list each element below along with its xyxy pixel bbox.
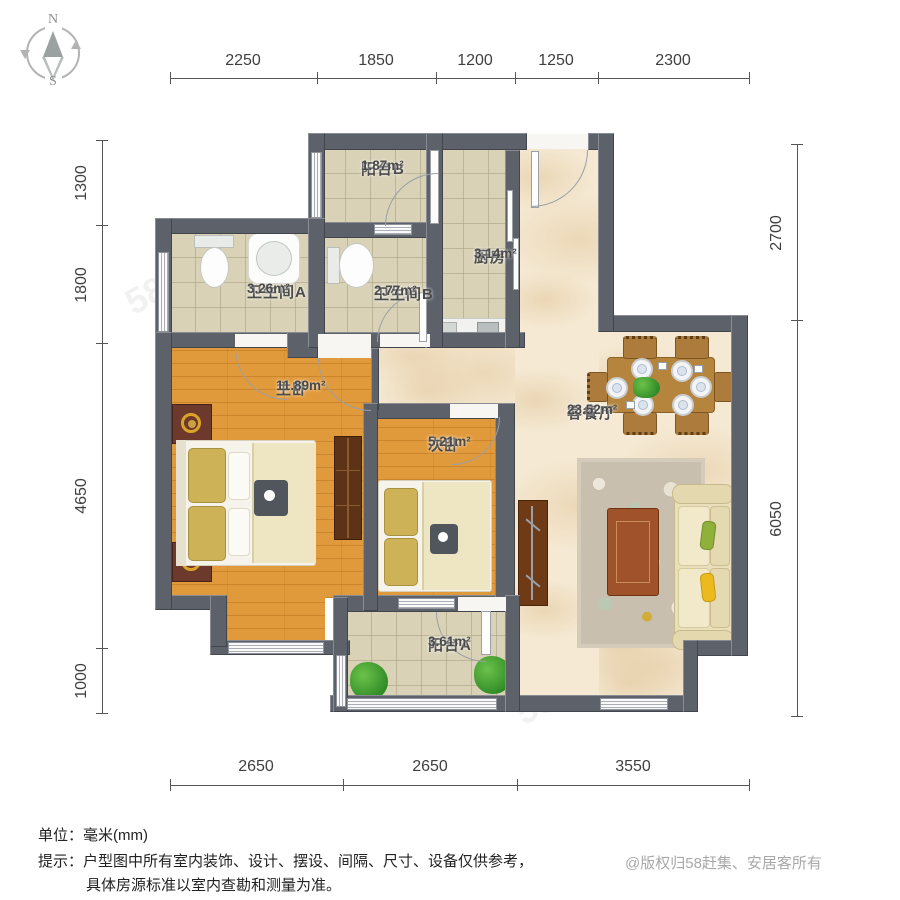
dim-bottom-1: 2650 xyxy=(221,758,291,776)
compass-needle-north-icon xyxy=(43,31,63,57)
dimension-tick xyxy=(170,779,171,791)
dimension-tick xyxy=(96,713,108,714)
dimension-tick xyxy=(96,343,108,344)
dining-chair xyxy=(675,336,709,359)
wall xyxy=(731,315,748,656)
headboard xyxy=(176,440,186,566)
dining-chair xyxy=(623,336,657,359)
sofa-armrest xyxy=(672,484,734,504)
door-opening xyxy=(450,404,498,418)
dimension-tick xyxy=(96,140,108,141)
wardrobe-divider xyxy=(336,470,360,471)
napkin xyxy=(626,401,635,409)
dimension-tick xyxy=(170,72,171,84)
dim-left-4: 1000 xyxy=(73,646,91,716)
window xyxy=(398,598,455,609)
room-area: 2.77m² xyxy=(374,283,417,298)
room-area: 3.61m² xyxy=(428,634,471,649)
plate-center xyxy=(637,364,647,374)
pillow xyxy=(384,538,418,586)
pillow xyxy=(384,488,418,536)
dim-right-2: 6050 xyxy=(768,484,786,554)
wall xyxy=(155,218,320,234)
window xyxy=(600,698,668,710)
pillow xyxy=(228,508,250,556)
floor-master-bay xyxy=(227,596,325,642)
wardrobe-divider xyxy=(336,505,360,506)
compass-north-label: N xyxy=(48,12,58,28)
dining-chair xyxy=(587,372,608,402)
dim-left-2: 1800 xyxy=(73,250,91,320)
wall xyxy=(308,218,325,348)
window xyxy=(228,642,324,654)
plate-center xyxy=(638,400,648,410)
wardrobe-divider xyxy=(347,438,349,538)
wall xyxy=(363,403,378,611)
compass-arrow-left-icon xyxy=(20,50,30,59)
dim-left-1: 1300 xyxy=(73,148,91,218)
table-plant xyxy=(633,377,660,398)
footer-unit-note: 单位：毫米(mm) xyxy=(38,824,148,845)
plate-center xyxy=(612,383,622,393)
wall xyxy=(598,315,748,332)
door-opening xyxy=(318,334,371,358)
room-area: 11.89m² xyxy=(276,378,326,393)
dimension-line xyxy=(797,144,798,716)
footer-tip-line1: 提示：户型图中所有室内装饰、设计、摆设、间隔、尺寸、设备仅供参考， xyxy=(38,850,533,871)
footer-copyright: @版权归58赶集、安居客所有 xyxy=(625,852,822,873)
compass: N S xyxy=(8,8,98,96)
dimension-tick xyxy=(515,72,516,84)
dimension-tick xyxy=(791,716,803,717)
wall xyxy=(371,348,379,410)
dimension-tick xyxy=(791,144,803,145)
room-area: 1.87m² xyxy=(361,158,404,173)
wall xyxy=(683,640,698,712)
dimension-tick xyxy=(317,72,318,84)
dim-top-3: 1200 xyxy=(440,52,510,70)
lamp-center xyxy=(188,420,196,428)
wall xyxy=(495,403,515,611)
coffee-table-inset xyxy=(616,521,650,583)
dimension-tick xyxy=(598,72,599,84)
room-area: 5.21m² xyxy=(428,434,471,449)
room-area: 3.26m² xyxy=(247,281,290,296)
dimension-line xyxy=(170,785,749,786)
dimension-tick xyxy=(96,648,108,649)
dim-left-3: 4650 xyxy=(73,461,91,531)
room-area: 23.52m² xyxy=(567,402,617,417)
dimension-tick xyxy=(517,779,518,791)
wall xyxy=(210,595,227,647)
pillow xyxy=(188,506,226,561)
dim-bottom-3: 3550 xyxy=(598,758,668,776)
dim-top-2: 1850 xyxy=(341,52,411,70)
decor xyxy=(339,243,374,288)
dim-right-1: 2700 xyxy=(768,198,786,268)
dimension-tick xyxy=(96,225,108,226)
dim-bottom-2: 2650 xyxy=(395,758,465,776)
napkin xyxy=(694,365,703,373)
dimension-tick xyxy=(343,779,344,791)
cabinet-rail xyxy=(531,506,533,600)
sofa-pillow-yellow xyxy=(700,572,717,602)
decor xyxy=(200,247,229,288)
floor-living-3 xyxy=(599,640,685,697)
wall xyxy=(155,332,172,610)
pillow xyxy=(228,452,250,500)
door-leaf xyxy=(507,190,513,242)
plate-center xyxy=(677,366,687,376)
floor-plan-canvas: 58同城 58同城 58同城 58同城 58同城 N S xyxy=(0,0,900,900)
napkin xyxy=(658,362,667,370)
dimension-tick xyxy=(749,779,750,791)
cabinet-living xyxy=(518,500,548,606)
door-opening xyxy=(235,334,287,347)
wall xyxy=(505,595,520,712)
dim-top-1: 2250 xyxy=(208,52,278,70)
sink-basin xyxy=(256,241,292,276)
wall xyxy=(598,133,614,332)
door-opening xyxy=(458,597,506,611)
pillow xyxy=(188,448,226,503)
window xyxy=(311,152,322,218)
tray-dot xyxy=(264,490,275,501)
dimension-line xyxy=(170,78,749,79)
compass-south-label: S xyxy=(49,74,57,90)
tray-dot xyxy=(438,532,448,542)
dim-top-5: 2300 xyxy=(638,52,708,70)
plate-center xyxy=(678,400,688,410)
floor-corridor xyxy=(377,348,518,405)
window xyxy=(347,698,497,710)
room-area: 3.14m² xyxy=(474,246,517,261)
wall xyxy=(308,133,527,150)
dimension-tick xyxy=(791,320,803,321)
dim-top-4: 1250 xyxy=(521,52,591,70)
window xyxy=(158,252,169,332)
compass-arrow-right-icon xyxy=(71,40,81,49)
door-opening xyxy=(527,134,588,149)
plate-center xyxy=(696,382,706,392)
window xyxy=(336,655,346,707)
floor-kitchen xyxy=(438,148,508,336)
dimension-tick xyxy=(436,72,437,84)
dimension-tick xyxy=(749,72,750,84)
footer-tip-line2: 具体房源标准以室内查勘和测量为准。 xyxy=(86,874,341,895)
